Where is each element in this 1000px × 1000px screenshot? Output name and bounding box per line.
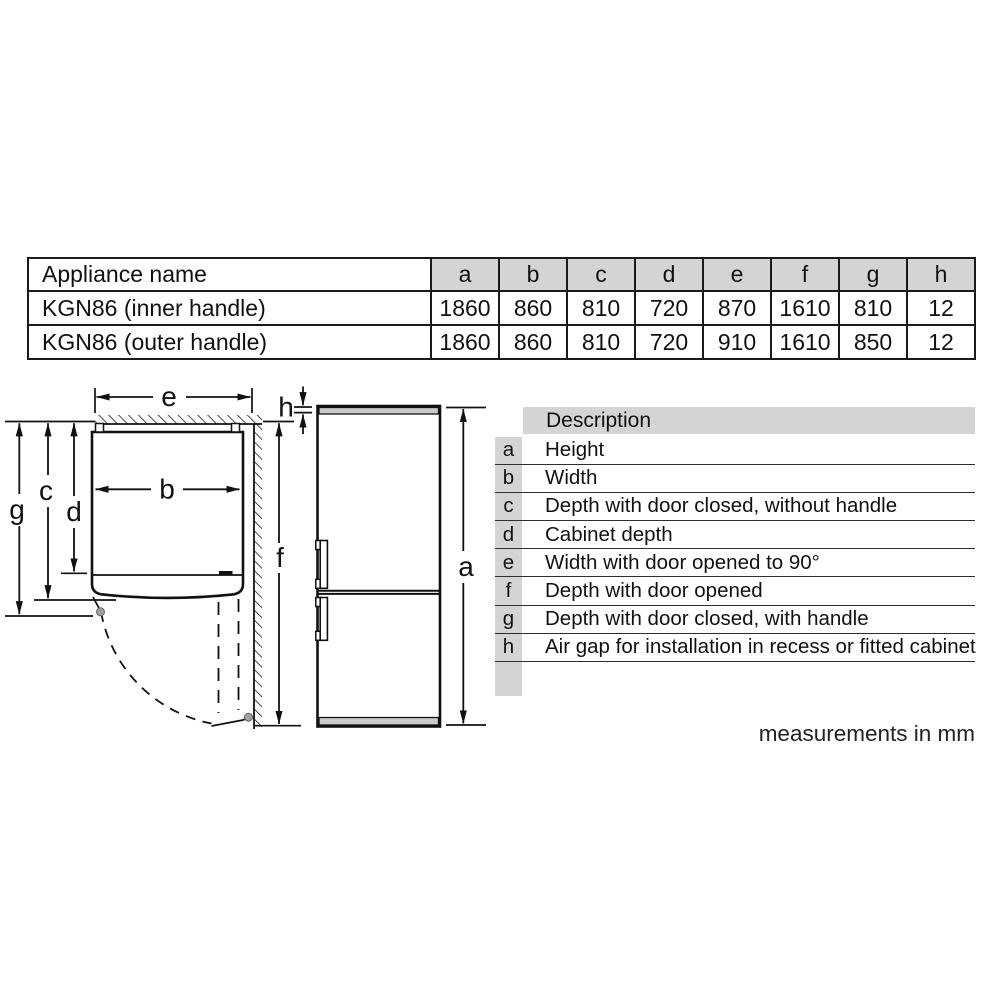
fridge-front-outline: [318, 406, 441, 727]
value-cell: 1610: [771, 291, 839, 325]
spec-header-h: h: [907, 258, 975, 291]
hinge-dot: [245, 713, 253, 721]
spec-table-header-row: Appliance name a b c d e f g h: [28, 258, 975, 291]
list-item: a Height: [495, 437, 975, 465]
dim-key: a: [495, 438, 522, 462]
dim-label-c: c: [39, 475, 53, 506]
value-cell: 12: [907, 291, 975, 325]
dim-description: Cabinet depth: [522, 523, 673, 547]
description-table: a Height b Width c Depth with door close…: [495, 437, 975, 663]
hinge-dot: [97, 608, 105, 616]
spec-header-e: e: [703, 258, 771, 291]
rear-spacer-left: [96, 424, 104, 433]
dim-a: a: [446, 408, 486, 726]
value-cell: 860: [499, 291, 567, 325]
list-item: g Depth with door closed, with handle: [495, 606, 975, 634]
dim-description: Width: [522, 466, 597, 490]
dim-key: f: [495, 579, 522, 603]
dim-description: Depth with door opened: [522, 579, 763, 603]
model-name: KGN86 (outer handle): [28, 325, 431, 359]
spec-header-appliance-name: Appliance name: [28, 258, 431, 291]
value-cell: 810: [567, 291, 635, 325]
spec-header-f: f: [771, 258, 839, 291]
dim-key: c: [495, 494, 522, 518]
value-cell: 1860: [431, 325, 499, 359]
dim-description: Depth with door closed, without handle: [522, 494, 897, 518]
list-item: d Cabinet depth: [495, 521, 975, 549]
dim-label-a: a: [458, 551, 474, 582]
list-item: e Width with door opened to 90°: [495, 549, 975, 577]
dim-e: e: [95, 381, 252, 413]
value-cell: 720: [635, 325, 703, 359]
value-cell: 910: [703, 325, 771, 359]
door-swing: [93, 597, 253, 726]
spec-sheet-page: { "spec_table": { "header": ["Appliance …: [0, 0, 1000, 1000]
dim-description: Height: [522, 438, 604, 462]
spec-header-g: g: [839, 258, 907, 291]
list-item: c Depth with door closed, without handle: [495, 493, 975, 521]
dim-description: Width with door opened to 90°: [522, 551, 820, 575]
dim-label-e: e: [161, 381, 177, 412]
dim-h: h: [278, 387, 312, 435]
value-cell: 860: [499, 325, 567, 359]
list-item: h Air gap for installation in recess or …: [495, 634, 975, 662]
value-cell: 12: [907, 325, 975, 359]
list-item: f Depth with door opened: [495, 577, 975, 605]
model-name: KGN86 (inner handle): [28, 291, 431, 325]
dim-key: e: [495, 551, 522, 575]
rear-spacer-right: [232, 424, 240, 433]
fridge-plinth: [319, 718, 439, 726]
spec-table: Appliance name a b c d e f g h KGN86 (in…: [27, 257, 976, 360]
top-view: e h b g c: [5, 381, 312, 729]
table-row: KGN86 (outer handle) 1860 860 810 720 91…: [28, 325, 975, 359]
value-cell: 720: [635, 291, 703, 325]
fridge-top-trim: [319, 408, 439, 415]
dimension-diagram: e h b g c: [0, 380, 500, 748]
value-cell: 850: [839, 325, 907, 359]
dim-label-d: d: [66, 496, 82, 527]
spec-header-c: c: [567, 258, 635, 291]
dim-label-b: b: [159, 474, 175, 505]
description-table-header: Description: [523, 407, 975, 435]
value-cell: 1610: [771, 325, 839, 359]
dim-key: d: [495, 523, 522, 547]
front-view: a: [316, 406, 486, 727]
value-cell: 1860: [431, 291, 499, 325]
dim-description: Air gap for installation in recess or fi…: [522, 635, 976, 659]
list-item: b Width: [495, 465, 975, 493]
value-cell: 810: [567, 325, 635, 359]
value-cell: 810: [839, 291, 907, 325]
door-swing-arc: [101, 612, 212, 724]
spec-header-a: a: [431, 258, 499, 291]
dim-label-f: f: [276, 542, 284, 573]
dim-key: g: [495, 607, 522, 631]
dim-key: h: [495, 635, 522, 659]
value-cell: 870: [703, 291, 771, 325]
table-row: KGN86 (inner handle) 1860 860 810 720 87…: [28, 291, 975, 325]
dim-description: Depth with door closed, with handle: [522, 607, 869, 631]
spec-header-b: b: [499, 258, 567, 291]
dim-key: b: [495, 466, 522, 490]
spec-header-d: d: [635, 258, 703, 291]
dim-label-h: h: [278, 392, 294, 423]
measurements-note: measurements in mm: [759, 721, 975, 747]
dim-label-g: g: [9, 494, 25, 525]
dim-d: d: [61, 423, 87, 573]
